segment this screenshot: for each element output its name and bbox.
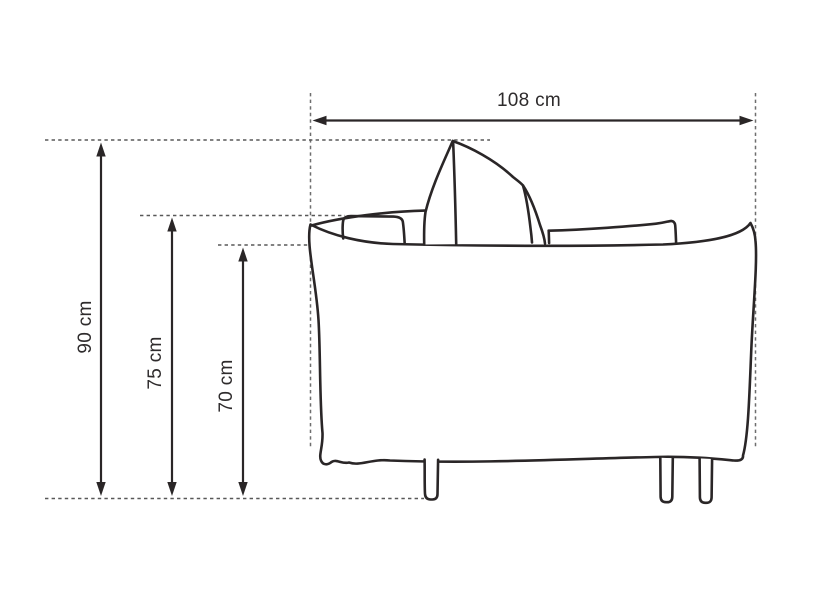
- dimension-label-90: 90 cm: [75, 300, 97, 353]
- dimension-arrow-70: [238, 248, 247, 497]
- dimension-label-75: 75 cm: [145, 336, 167, 389]
- dimension-arrow-90: [96, 143, 105, 497]
- sofa-leg-front: [425, 460, 439, 500]
- dimension-label-width: 108 cm: [497, 90, 561, 112]
- sofa-leg-back-right: [700, 458, 713, 502]
- dimension-arrow-width: [313, 116, 754, 126]
- sofa-drawing: [309, 141, 756, 503]
- sofa-leg-back-left: [660, 458, 673, 502]
- sofa-body: [309, 223, 756, 464]
- dimension-diagram: 108 cm 90 cm 75 cm 70 cm: [0, 0, 831, 600]
- dimension-label-70: 70 cm: [216, 359, 238, 412]
- dimension-arrow-75: [167, 218, 176, 497]
- sofa-armrest-right-top: [549, 221, 676, 243]
- sofa-back-edge: [312, 211, 425, 226]
- diagram-canvas: [0, 0, 831, 600]
